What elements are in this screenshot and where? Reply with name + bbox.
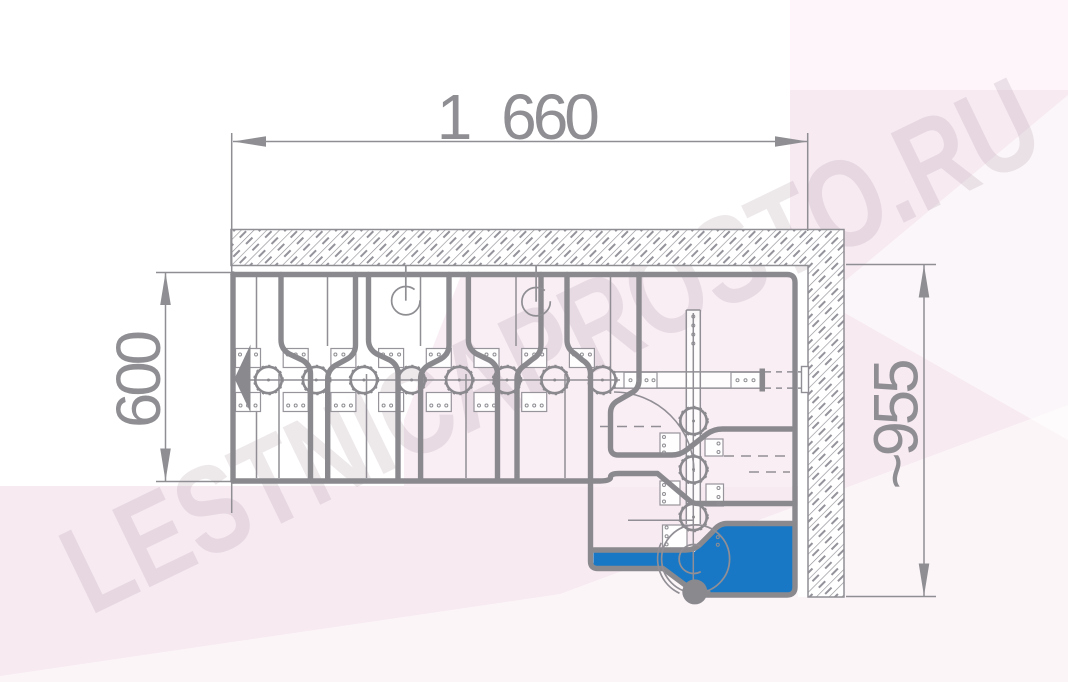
svg-text:600: 600 <box>104 332 174 428</box>
svg-text:~955: ~955 <box>862 361 932 490</box>
svg-text:1: 1 <box>437 81 470 153</box>
svg-text:660: 660 <box>501 81 598 153</box>
